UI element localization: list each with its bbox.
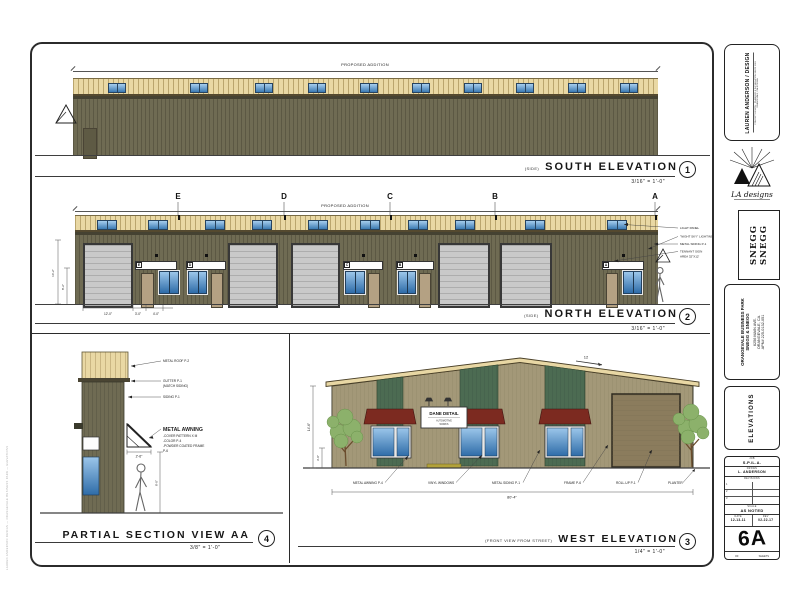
north-callout: AREA 32"X12' <box>680 255 700 259</box>
rollup-door <box>500 243 552 308</box>
south-title-prefix: (SIDE) <box>525 166 539 171</box>
partial-section-view: 2'-6" 8'-0" METAL ROOF P-2 GUTTER P-1 (M… <box>35 340 287 525</box>
section-scale: 3/8" = 1'-0" <box>190 545 220 551</box>
grid-tick <box>495 215 497 220</box>
slope-indicator: 12 <box>576 355 602 367</box>
stamp-name: SNEGG <box>759 225 769 265</box>
sheet-title: ELEVATIONS <box>749 393 755 442</box>
logo-script-text: LA designs <box>730 190 773 199</box>
tenant-sign: DANE DETAIL AUTOMOTIVE WORKS <box>421 407 467 428</box>
north-dim-bottom: 4'-0" <box>153 312 159 316</box>
drawing-sheet: LAUREN ANDERSON DESIGN — ORANGEVALE BUSI… <box>0 0 800 600</box>
section-opening <box>83 437 99 450</box>
section-gutter <box>78 378 130 382</box>
west-view-title: (FRONT VIEW FROM STREET) WEST ELEVATION <box>485 533 678 545</box>
rev-row-num: 1 <box>726 483 727 486</box>
man-door <box>606 273 618 308</box>
west-callout: ROLL-UP P-1 <box>616 481 636 485</box>
north-person-figure <box>652 266 668 306</box>
storefront-window <box>188 271 207 294</box>
south-title-text: SOUTH ELEVATION <box>545 161 678 173</box>
north-title-underline <box>35 323 675 324</box>
clerestory-window <box>252 220 272 230</box>
firm-logo: LA designs <box>726 146 778 204</box>
south-clerestory-band <box>73 78 658 96</box>
drawn-value: L. ANDERSON <box>725 470 779 474</box>
titleblock-table: JOB S.P./L.A. DRAWN L. ANDERSON REVISION… <box>724 456 780 560</box>
north-banner-dimline <box>75 211 658 212</box>
height-dim: 8'-0" <box>155 480 159 486</box>
north-grid-bubbles: E D C B A <box>35 186 710 218</box>
north-left-dims: 14'-2" 8'-2" <box>40 235 78 310</box>
project-client: SNEGG & SNEGG <box>745 313 750 350</box>
clerestory-window <box>412 83 430 93</box>
west-callouts: METAL AWNING P-4 VINYL WINDOWS METAL SID… <box>353 481 683 485</box>
rev-row-num: 3 <box>726 497 727 500</box>
unit-tag: E <box>136 262 142 268</box>
section-awning-note: -COLOR P-4 <box>163 439 181 443</box>
unit-tag: C <box>344 262 350 268</box>
clerestory-window <box>308 220 328 230</box>
section-awning-note: -POWDER COATED FRAME <box>163 444 204 448</box>
west-callout: PLANTER <box>668 481 683 485</box>
north-wall: E D C B A <box>75 232 658 305</box>
rev-row-num: 2 <box>726 490 727 493</box>
sign-light <box>155 254 158 257</box>
west-callout: METAL SIDING P-1 <box>492 481 520 485</box>
north-callout: TENNANT SIGN <box>680 250 702 254</box>
west-callout: METAL AWNING P-4 <box>353 481 383 485</box>
south-wall <box>73 96 658 156</box>
storefront-window <box>345 271 365 294</box>
clerestory-window <box>148 220 168 230</box>
north-callout: "NIGHT SKY" LIGHTING <box>680 235 712 239</box>
grid-letter: A <box>652 192 658 201</box>
storefront-window <box>398 271 416 294</box>
west-callout: VINYL WINDOWS <box>428 481 454 485</box>
job-row: JOB S.P./L.A. <box>725 457 779 467</box>
section-view-title: PARTIAL SECTION VIEW AA <box>35 529 250 541</box>
storefront-window <box>623 271 642 294</box>
west-elevation-view: DANE DETAIL AUTOMOTIVE WORKS 12 <box>298 348 712 504</box>
project-box: ORANGEVALE BUSINESS PARK SNEGG & SNEGG 6… <box>724 284 780 380</box>
west-rollup-door <box>612 394 680 467</box>
grid-tick <box>178 215 180 220</box>
west-dim-left: 3'-0" <box>316 455 320 461</box>
west-view-number: 3 <box>679 533 696 550</box>
section-callout: METAL ROOF P-2 <box>163 359 189 363</box>
grid-tick <box>284 215 286 220</box>
sheet-number-cell: 6A <box>725 527 779 552</box>
firm-box: LAUREN ANDERSON / DESIGN CONCEPT DESIGN … <box>724 44 780 141</box>
awning-dim: 2'-6" <box>136 455 144 459</box>
north-callouts: LIGHT PANEL "NIGHT SKY" LIGHTING METAL S… <box>600 216 712 271</box>
rollup-door <box>228 243 278 308</box>
rollup-door <box>83 243 133 308</box>
clerestory-window <box>108 83 126 93</box>
north-title-text: NORTH ELEVATION <box>545 308 678 320</box>
north-ground-line <box>35 304 710 305</box>
client-stamp-box: SNEGG SNEGG <box>738 210 780 280</box>
west-title-underline <box>298 546 675 547</box>
clerestory-window <box>408 220 428 230</box>
clerestory-window <box>97 220 117 230</box>
north-callout: LIGHT PANEL <box>680 226 700 230</box>
unit-tag: D <box>187 262 193 268</box>
grid-letter: C <box>387 192 393 201</box>
section-awning-note: P-6 <box>163 449 168 453</box>
south-banner-label: PROPOSED ADDITION <box>330 62 400 67</box>
west-dim-left: 14'-6" <box>307 423 311 431</box>
section-roof-band <box>82 352 128 379</box>
north-dim-bottom: 3'-0" <box>135 312 141 316</box>
sign-light <box>362 254 365 257</box>
south-ground-line <box>35 155 710 156</box>
west-scale: 1/4" = 1'-0" <box>635 549 665 555</box>
south-view-title: (SIDE) SOUTH ELEVATION <box>525 161 678 173</box>
section-person-figure <box>136 464 147 511</box>
clerestory-window <box>516 83 534 93</box>
north-bottom-dims: 12'-0" 3'-0" 4'-0" <box>75 303 195 318</box>
man-door <box>211 273 223 308</box>
section-callout: SIDING P-1 <box>163 395 180 399</box>
vertical-divider <box>289 333 290 563</box>
north-view-number: 2 <box>679 308 696 325</box>
project-apn: APN# 225-0132-051 <box>761 315 765 350</box>
man-door <box>368 273 380 308</box>
north-view-title: (SIDE) NORTH ELEVATION <box>524 308 678 320</box>
sheet-title-box: ELEVATIONS <box>724 386 780 450</box>
unit-tag: B <box>397 262 403 268</box>
west-title-prefix: (FRONT VIEW FROM STREET) <box>485 538 552 543</box>
rev-date-value: 02-22-17 <box>753 518 780 522</box>
man-door <box>419 273 431 308</box>
rollup-door <box>438 243 490 308</box>
drawn-row: DRAWN L. ANDERSON <box>725 467 779 477</box>
south-banner-dimline <box>73 71 658 72</box>
grid-letter: B <box>492 192 498 201</box>
west-callout: FRAME P-6 <box>564 481 581 485</box>
job-value: S.P./L.A. <box>725 460 779 465</box>
west-window <box>371 426 585 458</box>
clerestory-window <box>568 83 586 93</box>
clerestory-window <box>190 83 208 93</box>
clerestory-window <box>620 83 638 93</box>
sheet-number: 6A <box>737 526 767 551</box>
scale-value: AS NOTED <box>725 508 779 513</box>
south-scale: 3/16" = 1'-0" <box>631 179 665 185</box>
section-awning-note: -COVER PATTERN X M <box>163 434 198 438</box>
west-dim-bottom: 80'-4" <box>507 496 517 500</box>
scale-row: SCALE AS NOTED <box>725 505 779 515</box>
sign-light <box>205 254 208 257</box>
grid-letter: D <box>281 192 287 201</box>
sheets-footer: OF SHEETS <box>725 552 779 560</box>
date-value: 12-13-11 <box>725 518 752 522</box>
section-view-number: 4 <box>258 530 275 547</box>
revisions-block: REVISIONS 1 2 3 <box>725 477 779 505</box>
section-title-underline <box>35 542 253 543</box>
section-awning <box>127 424 151 447</box>
north-dim-left: 8'-2" <box>61 284 65 290</box>
of-label: OF <box>735 555 739 558</box>
firm-line: ORANGEVALE, CALIFORNIA <box>757 78 759 107</box>
west-bottom-dim <box>332 489 693 495</box>
storefront-window <box>159 271 179 294</box>
rollup-door <box>291 243 340 308</box>
north-banner-label: PROPOSED ADDITION <box>310 203 380 208</box>
clerestory-window <box>308 83 326 93</box>
date-row: DATE 12-13-11 REV 02-22-17 <box>725 515 779 527</box>
clerestory-window <box>360 83 378 93</box>
north-scale: 3/16" = 1'-0" <box>631 326 665 332</box>
section-awning-title: METAL AWNING <box>163 427 203 433</box>
clerestory-window <box>205 220 225 230</box>
edge-note: LAUREN ANDERSON DESIGN — ORANGEVALE BUSI… <box>6 400 9 570</box>
south-title-underline <box>35 176 675 177</box>
west-title-text: WEST ELEVATION <box>558 533 678 545</box>
clerestory-window <box>525 220 545 230</box>
revisions-label: REVISIONS <box>725 477 779 480</box>
grid-tick <box>390 215 392 220</box>
south-marker-triangle <box>52 100 80 128</box>
sign-text-sub: WORKS <box>439 423 448 426</box>
firm-name: LAUREN ANDERSON / DESIGN <box>745 52 751 133</box>
north-dim-bottom: 12'-0" <box>104 312 112 316</box>
slope-label: 12 <box>584 355 589 360</box>
clerestory-window <box>455 220 475 230</box>
sheets-label: SHEETS <box>759 555 769 558</box>
south-view-number: 1 <box>679 161 696 178</box>
section-callout: (MATCH SIDING) <box>163 384 188 388</box>
clerestory-window <box>464 83 482 93</box>
stamp-name: SNEGG <box>749 225 759 265</box>
awning-mount <box>74 423 83 429</box>
grid-letter: E <box>175 192 181 201</box>
sign-text-main: DANE DETAIL <box>429 411 459 416</box>
section-callout: GUTTER P-1 <box>163 379 182 383</box>
section-title-text: PARTIAL SECTION VIEW AA <box>62 529 250 541</box>
west-awning <box>364 409 591 424</box>
north-clerestory-band <box>75 215 658 232</box>
clerestory-window <box>255 83 273 93</box>
clerestory-window <box>360 220 380 230</box>
horizontal-divider <box>30 333 710 334</box>
north-title-prefix: (SIDE) <box>524 313 538 318</box>
section-window <box>83 457 99 495</box>
north-callout: METAL SIDING P-1 <box>680 242 707 246</box>
north-dim-left: 14'-2" <box>51 269 55 277</box>
sign-light <box>414 254 417 257</box>
